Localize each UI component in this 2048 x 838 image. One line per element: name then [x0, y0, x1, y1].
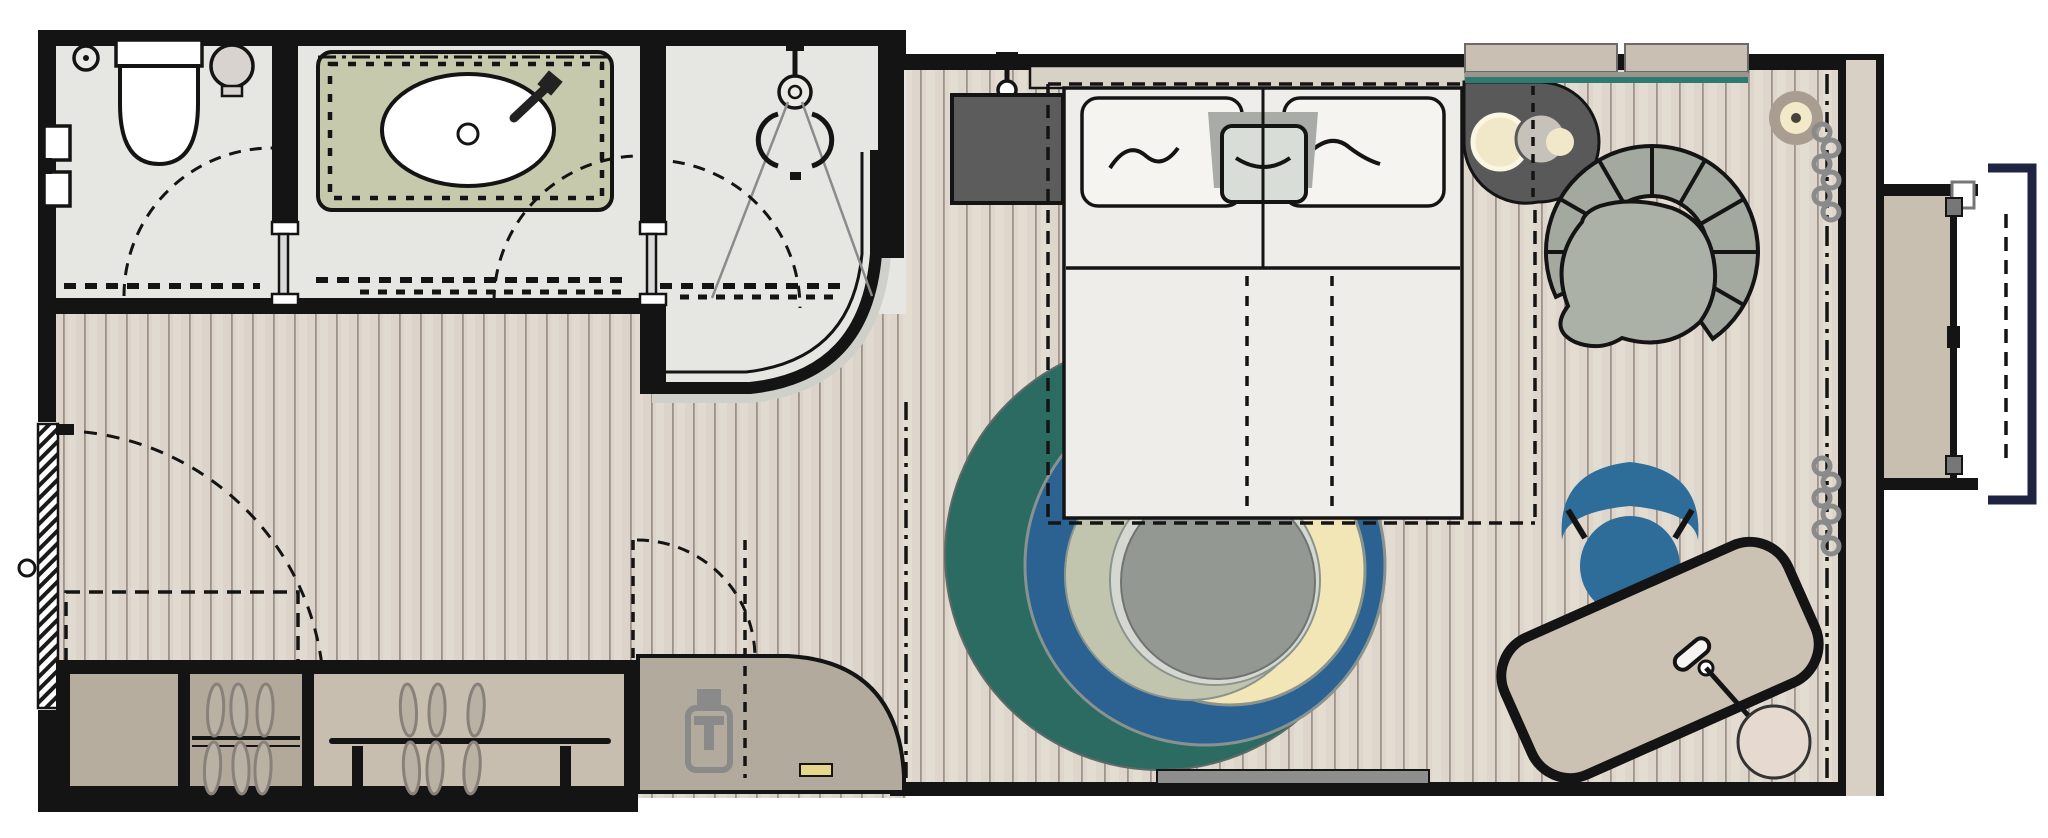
bench-leg-right: [560, 746, 571, 798]
sideboard-strip: [1157, 770, 1429, 784]
table-lamp-small: [1546, 128, 1574, 156]
entry-door-hinge-top: [56, 424, 74, 435]
desk-lamp-base: [1738, 706, 1810, 778]
vanity-shower-divider-wall: [640, 44, 666, 230]
sink-drain-icon: [458, 124, 478, 144]
shower-valve-tick: [790, 172, 801, 180]
curtain-top-icon: [1814, 124, 1839, 220]
closet-bottom-wall: [38, 796, 638, 812]
balcony-frame-bottom: [1884, 478, 1978, 490]
balcony-handle: [1947, 326, 1960, 348]
shower-bedroom-wall: [878, 46, 904, 258]
balcony-hinge-top: [1946, 198, 1962, 216]
console-shelf: [1465, 44, 1748, 83]
window-wall-inner-line: [1838, 60, 1846, 796]
curtain-bottom-icon: [1814, 458, 1839, 554]
bench-leg-left: [352, 746, 363, 798]
bed: [1030, 66, 1466, 518]
floor-plan-canvas: [0, 0, 2048, 838]
window-wall-outer-line: [1876, 60, 1884, 796]
threshold-light: [800, 764, 832, 776]
left-wall-upper: [38, 30, 56, 422]
balcony-platform: [1884, 196, 1950, 478]
toilet: [116, 40, 202, 164]
vanity-door-leaf: [647, 234, 656, 296]
balcony-hinge-bottom: [1946, 456, 1962, 474]
shower-jog-wall: [640, 306, 666, 394]
console-teal-edge: [1465, 77, 1748, 83]
vanity-door-jamb-top: [640, 222, 666, 234]
wardrobe-shelf-compartment: [70, 674, 178, 786]
entry-door-leaf: [38, 424, 58, 708]
wardrobe: [56, 660, 638, 798]
wc-door-jamb-top: [272, 222, 298, 234]
wc-vanity-divider-wall: [272, 44, 298, 230]
vanity-door-jamb-bottom: [640, 294, 666, 305]
shower-head-icon: [779, 76, 811, 108]
floor-plan: [0, 0, 2048, 838]
wc-door-leaf: [279, 234, 288, 296]
bathroom-bottom-wall: [38, 298, 652, 314]
console-shadow: [1465, 72, 1748, 77]
armchair-seat: [1560, 201, 1715, 346]
window-wall: [1838, 60, 1884, 796]
floor-drain-dot: [83, 55, 89, 61]
window-wall-band: [1846, 60, 1876, 796]
armchair: [1546, 146, 1758, 346]
wc-door-jamb-bottom: [272, 294, 298, 305]
